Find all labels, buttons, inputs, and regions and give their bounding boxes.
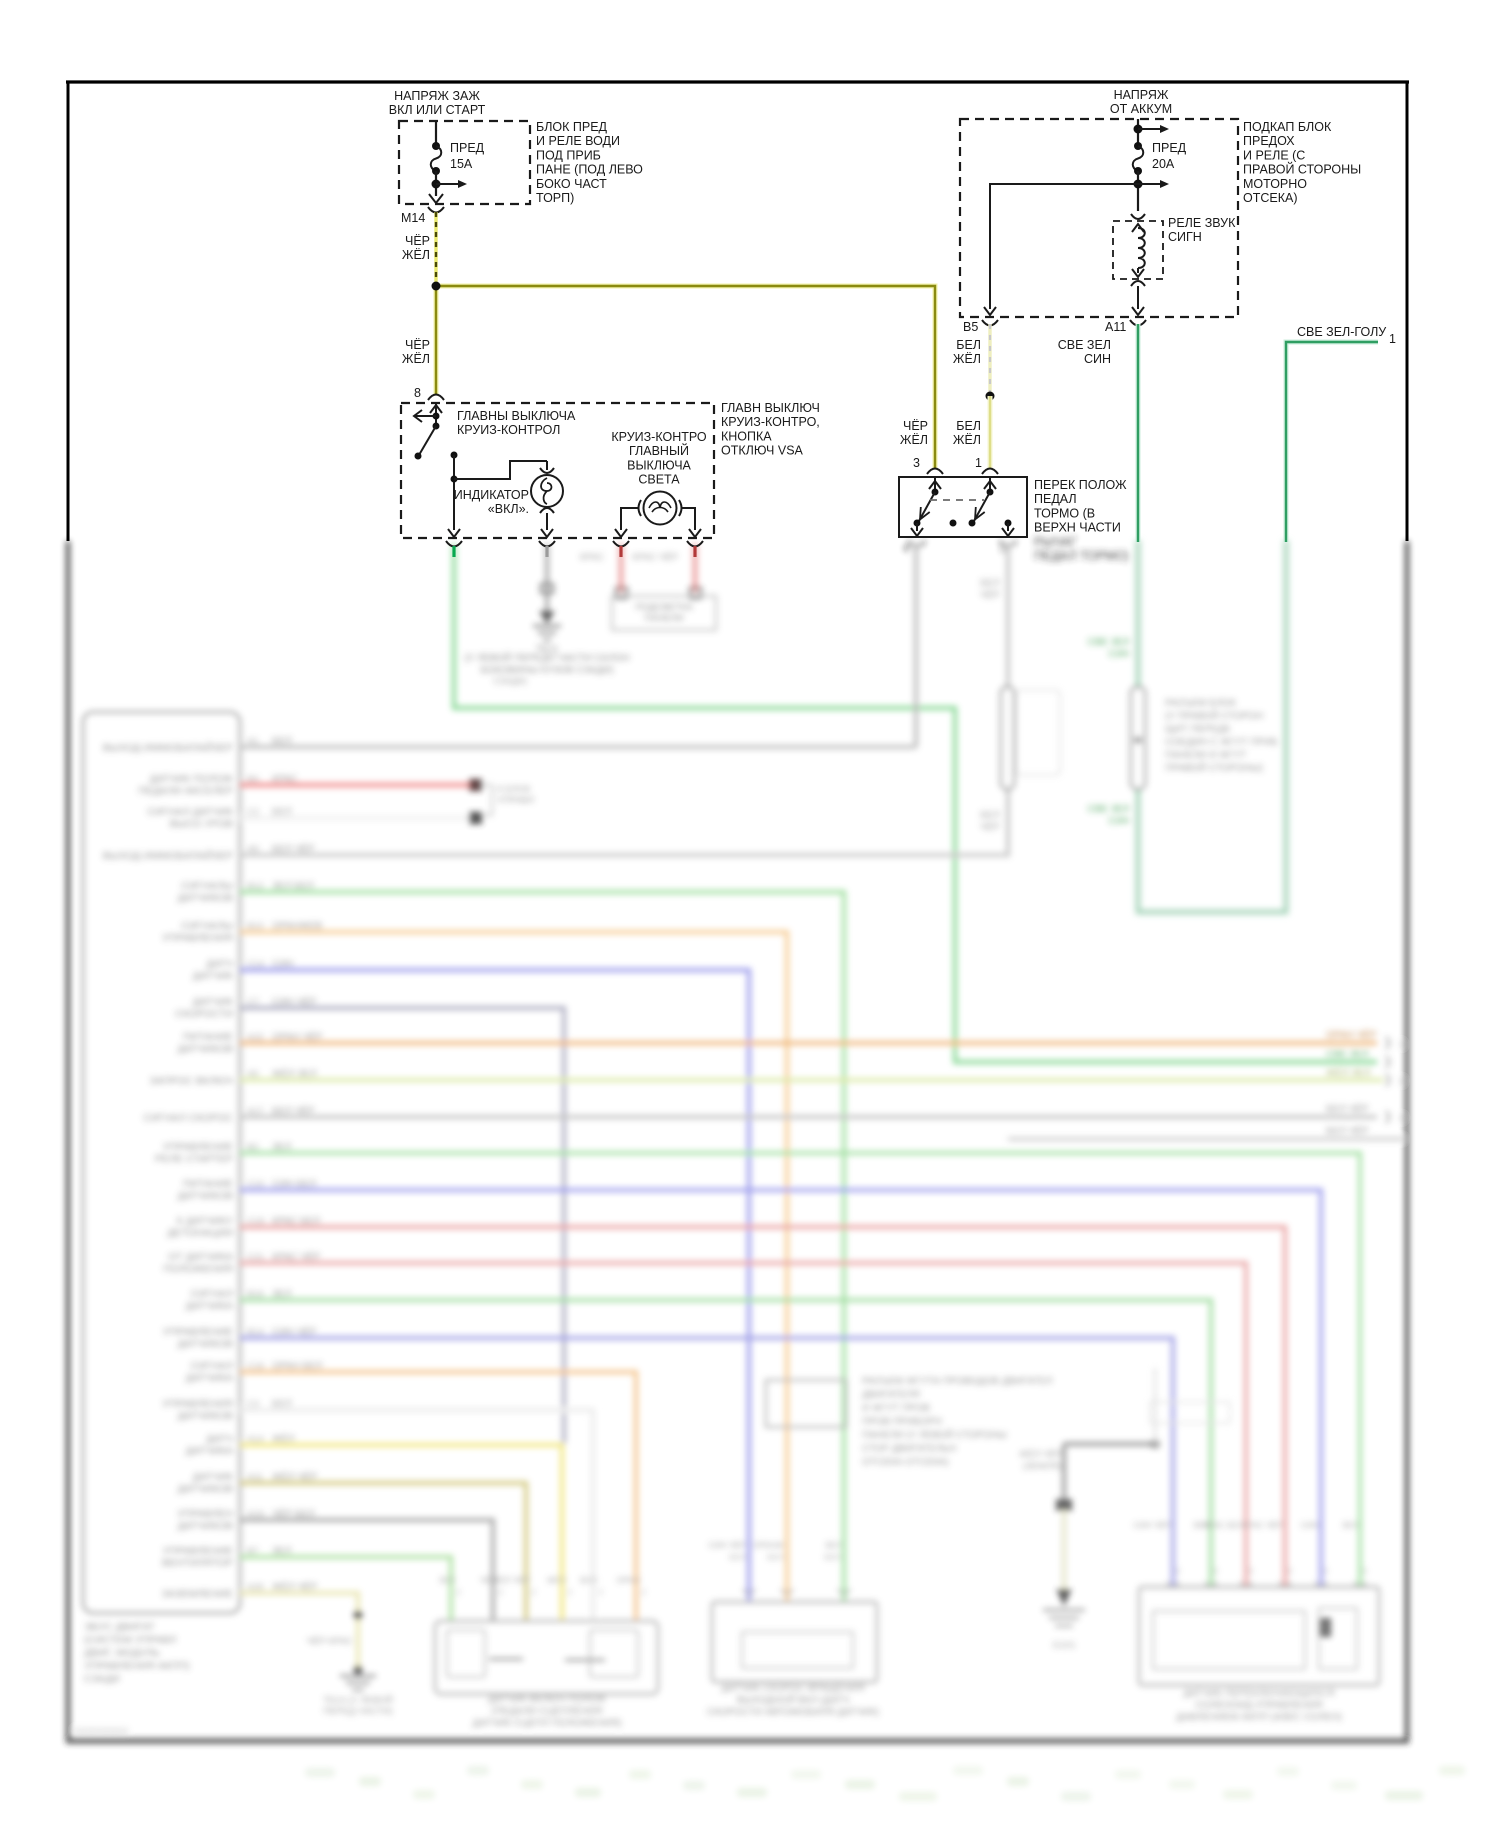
svg-text:НАПРЯЖ: НАПРЯЖ [1114,88,1169,102]
svg-text:2: 2 [1399,1076,1404,1086]
svg-text:ВЫКЛЮЧА: ВЫКЛЮЧА [627,458,691,472]
svg-text:КРАС БЕЛ: КРАС БЕЛ [1203,1520,1244,1530]
svg-text:ДАТЧИК: ДАТЧИК [193,996,234,1008]
svg-text:ДАТЧИКА: ДАТЧИКА [186,1300,233,1312]
svg-text:ЧЁР: ЧЁР [405,338,430,352]
svg-text:ДВИГ, МОДУЛЬ: ДВИГ, МОДУЛЬ [84,1647,160,1659]
svg-text:ДАТЧИКОВ: ДАТЧИКОВ [178,1410,233,1422]
svg-text:УПРАВЛЕНИЯ АКПП): УПРАВЛЕНИЯ АКПП) [84,1660,190,1672]
svg-text:2: 2 [567,1587,572,1597]
svg-text:ПОДСВЕТКА: ПОДСВЕТКА [635,602,693,613]
svg-text:3: 3 [1399,1113,1404,1123]
svg-text:ЧЁР: ЧЁР [405,234,430,248]
svg-text:СЗАДИ: СЗАДИ [84,1673,120,1685]
svg-text:ДАТЧИКОВ: ДАТЧИКОВ [178,1483,233,1495]
svg-text:ВЫХОД ИММОБИЛАЙЗЕР: ВЫХОД ИММОБИЛАЙЗЕР [103,741,233,754]
svg-text:2: 2 [598,1587,603,1597]
svg-text:СИГНАЛ: СИГНАЛ [190,1360,233,1372]
svg-text:3: 3 [1248,1566,1253,1576]
svg-text:УПРАВЛЕН: УПРАВЛЕН [177,1508,233,1520]
svg-text:ПОЛОЖЕНИЯ: ПОЛОЖЕНИЯ [163,1263,233,1275]
svg-text:СВЕ ЗЕЛ-ГОЛУ: СВЕ ЗЕЛ-ГОЛУ [1297,325,1386,339]
svg-text:ОТСЕКА ОТСЕКА): ОТСЕКА ОТСЕКА) [862,1457,949,1468]
svg-text:ЗАЗЕМЛЕНИЕ: ЗАЗЕМЛЕНИЕ [162,1588,233,1600]
svg-text:СВЕ ЗЕЛ: СВЕ ЗЕЛ [1326,1049,1369,1060]
svg-text:КРУИЗ-КОНТРОЛ: КРУИЗ-КОНТРОЛ [457,423,560,437]
svg-text:БЕЛ: БЕЛ [956,419,981,433]
svg-text:КРУИЗ-КОНТРО: КРУИЗ-КОНТРО [611,430,707,444]
svg-text:КРАС ЧЁР: КРАС ЧЁР [632,552,678,563]
svg-text:БЕЛ: БЕЛ [767,1552,784,1562]
svg-text:СИГНАЛ СКОРОС: СИГНАЛ СКОРОС [143,1112,233,1124]
svg-text:БЕЛ: БЕЛ [980,810,1000,821]
svg-text:ПРОВ ПРИБОРН: ПРОВ ПРИБОРН [862,1417,942,1428]
svg-text:РЕЛЕ ЗВУК: РЕЛЕ ЗВУК [1168,216,1236,230]
svg-text:ЧЁР: ЧЁР [903,419,928,433]
svg-text:2: 2 [531,1587,536,1597]
svg-text:ДАТЧИК ПЕРЕКЛЮЧАЮЩИХСЯ: ДАТЧИК ПЕРЕКЛЮЧАЮЩИХСЯ [1183,1688,1334,1699]
svg-text:ДАТЧИКОВ: ДАТЧИКОВ [178,1338,233,1350]
svg-text:15А: 15А [450,157,473,171]
svg-text:M14: M14 [401,211,425,225]
svg-text:ДАТЧИКОВ: ДАТЧИКОВ [178,1520,233,1532]
svg-text:ВЫХОДНОЙ ВАЛ (ДАТЧ: ВЫХОДНОЙ ВАЛ (ДАТЧ [737,1693,850,1706]
svg-text:СИН: СИН [1301,1520,1319,1530]
svg-text:КРУИЗ-КОНТРО,: КРУИЗ-КОНТРО, [721,415,820,429]
svg-text:ДАТЧИК: ДАТЧИК [193,1471,234,1483]
svg-text:СЗАДИ): СЗАДИ) [493,676,527,686]
svg-text:КНОПКА: КНОПКА [721,429,772,443]
svg-text:ДАТЧИК СКОРОС ВРАЩЕНИЯ: ДАТЧИК СКОРОС ВРАЩЕНИЯ [721,1683,864,1694]
svg-text:ОРАН ЧЁР: ОРАН ЧЁР [1326,1029,1377,1041]
svg-text:3: 3 [1175,1566,1180,1576]
svg-text:КРАС ЧЁР: КРАС ЧЁР [1242,1520,1283,1530]
svg-text:ЖЁЛ ЧЁР: ЖЁЛ ЧЁР [1019,1449,1062,1460]
svg-text:3: 3 [913,456,920,470]
svg-text:СИН: СИН [1108,649,1130,660]
svg-text:И РЕЛЕ ВОДИ: И РЕЛЕ ВОДИ [536,134,620,148]
svg-text:УПРАВЛ: УПРАВЛ [497,795,534,806]
svg-text:1: 1 [1389,332,1396,346]
svg-text:ЭБУС ДВИГАТ: ЭБУС ДВИГАТ [84,1621,155,1633]
svg-text:ВЕНТИЛЯТОР: ВЕНТИЛЯТОР [162,1557,233,1569]
svg-text:ВЫСО УРОВ: ВЫСО УРОВ [170,818,233,830]
svg-text:К ДАТЧИКУ: К ДАТЧИКУ [177,1215,234,1227]
svg-text:БОКОВИНЫ КУЗОВ СЗАДИ): БОКОВИНЫ КУЗОВ СЗАДИ) [480,665,613,676]
svg-text:(ПЕДАЛИ СЦЕПЛЕНИЯ: (ПЕДАЛИ СЦЕПЛЕНИЯ [492,1706,603,1717]
svg-text:СВЕТА: СВЕТА [638,473,680,487]
svg-text:ПИТАНИЕ: ПИТАНИЕ [183,1031,233,1043]
svg-text:ЗЕЛ: ЗЕЛ [825,1540,841,1550]
svg-text:ЖЁЛ: ЖЁЛ [402,352,430,366]
svg-text:ИНДИКАТОР: ИНДИКАТОР [454,488,529,502]
svg-text:БЕЛ: БЕЛ [980,578,1000,589]
svg-text:БЕЛ: БЕЛ [729,1552,746,1562]
svg-text:И РЕЛЕ (С: И РЕЛЕ (С [1243,148,1305,162]
svg-text:ОРАНЖ: ОРАНЖ [753,1540,785,1550]
svg-text:СИГН: СИГН [1168,230,1202,244]
svg-text:ДАТЧИКА: ДАТЧИКА [186,1372,233,1384]
svg-text:ДАТЧИКОВ: ДАТЧИКОВ [178,1190,233,1202]
svg-text:ЖЁЛ: ЖЁЛ [953,433,981,447]
svg-text:ДАТЧИКОВ: ДАТЧИКОВ [178,892,233,904]
svg-text:(У ЛЕВОЙ ПЕРЕДН ЧАСТИ САЛОН: (У ЛЕВОЙ ПЕРЕДН ЧАСТИ САЛОН [464,651,629,664]
svg-text:УПРАВЛЕНИЕ: УПРАВЛЕНИЕ [163,1141,233,1153]
svg-text:ЧЁР: ЧЁР [980,589,1000,601]
svg-text:(ЗЕМЛЯ): (ЗЕМЛЯ) [1023,1461,1062,1472]
svg-text:(У ПРАВОЙ СТОРОН: (У ПРАВОЙ СТОРОН [1165,709,1263,722]
svg-text:СИГНАЛЫ: СИГНАЛЫ [181,880,233,892]
svg-text:3: 3 [1213,1566,1218,1576]
svg-text:ПЕРЕК ПОЛОЖ: ПЕРЕК ПОЛОЖ [1034,478,1127,492]
svg-text:ОТ ДАТЧИКА: ОТ ДАТЧИКА [168,1251,233,1263]
svg-text:ПОД ПРИБ: ПОД ПРИБ [536,148,601,162]
svg-text:СИН: СИН [1084,352,1111,366]
svg-text:БЛОК ПРЕД: БЛОК ПРЕД [536,120,608,134]
svg-text:2: 2 [456,1587,461,1597]
svg-text:ПОДКАП БЛОК: ПОДКАП БЛОК [1243,120,1332,134]
svg-text:20А: 20А [1152,157,1175,171]
svg-text:ЗЕЛ: ЗЕЛ [1342,1520,1358,1530]
svg-text:4: 4 [903,541,910,555]
svg-text:ТОРМО (В: ТОРМО (В [1034,506,1095,520]
svg-text:ПРЕДОХ: ПРЕДОХ [1243,134,1295,148]
svg-text:МОТОРНО: МОТОРНО [1243,177,1307,191]
svg-text:3: 3 [1323,1566,1328,1576]
svg-text:УПРАВЛЕНИЯ: УПРАВЛЕНИЯ [162,932,233,944]
svg-text:ТБ14 (У ЛЕВОЙ: ТБ14 (У ЛЕВОЙ [323,1694,393,1706]
svg-text:3: 3 [1362,1566,1367,1576]
svg-text:ДАВЛЕНИЕМ АКПП (А/В/С СОЛЕН): ДАВЛЕНИЕМ АКПП (А/В/С СОЛЕН) [1176,1712,1342,1723]
svg-text:ПЕДАЛ ТОРМО): ПЕДАЛ ТОРМО) [1034,549,1129,563]
svg-text:«ВКЛ».: «ВКЛ». [488,502,529,516]
svg-text:ПРЕД: ПРЕД [1152,141,1187,155]
svg-text:СОЛЕНОИД УПРАВЛЕНИЯ: СОЛЕНОИД УПРАВЛЕНИЯ [1195,1700,1322,1711]
svg-text:РЫЧАГ: РЫЧАГ [1034,535,1077,549]
svg-text:ДАТЧИК ВКЛЮЧ ПОЛОЖ: ДАТЧИК ВКЛЮЧ ПОЛОЖ [488,1694,606,1705]
svg-text:БЕЛ ЧЁР: БЕЛ ЧЁР [1326,1125,1369,1137]
svg-text:ЖЁЛ: ЖЁЛ [900,433,928,447]
svg-text:РЕЛЕ СТАРТЕР: РЕЛЕ СТАРТЕР [155,1153,233,1165]
svg-text:СКОРОСТИ: СКОРОСТИ [175,1008,233,1020]
svg-text:3: 3 [1287,1566,1292,1576]
svg-text:БЕЛ: БЕЛ [824,1552,841,1562]
svg-text:СИГНАЛ: СИГНАЛ [190,1288,233,1300]
svg-text:G101: G101 [1052,1640,1075,1651]
svg-text:БОКО ЧАСТ: БОКО ЧАСТ [536,177,607,191]
svg-text:СТОР ДВИГАТЕЛЬН: СТОР ДВИГАТЕЛЬН [862,1444,956,1455]
svg-text:УПРАВЛЕНИЯ: УПРАВЛЕНИЯ [162,1398,233,1410]
svg-text:СИН: СИН [1108,816,1130,827]
svg-text:СИГНАЛ ДАТЧИК: СИГНАЛ ДАТЧИК [147,806,234,818]
svg-text:ВЕРХН ЧАСТИ: ВЕРХН ЧАСТИ [1034,521,1121,535]
svg-text:ОТКЛЮЧ VSA: ОТКЛЮЧ VSA [721,444,804,458]
svg-text:ДАТЧИКОВ: ДАТЧИКОВ [178,1043,233,1055]
svg-text:СВЕ ЗЕЛ: СВЕ ЗЕЛ [1087,637,1130,648]
svg-text:ГЛАВНЫ ВЫКЛЮЧА: ГЛАВНЫ ВЫКЛЮЧА [457,409,576,423]
svg-text:ЖЁЛ ЧЁР: ЖЁЛ ЧЁР [492,1575,531,1585]
svg-text:ЩИТ ПЕРЕДК: ЩИТ ПЕРЕДК [1165,724,1230,735]
svg-text:ОТ АККУМ: ОТ АККУМ [1110,102,1172,116]
svg-text:ЗЕЛ: ЗЕЛ [439,1575,455,1585]
svg-text:8: 8 [414,386,421,400]
svg-text:ЗАПРОС ВКЛЮЧ: ЗАПРОС ВКЛЮЧ [150,1075,233,1087]
svg-text:2: 2 [641,1587,646,1597]
svg-text:ПЕДАЛ: ПЕДАЛ [1034,492,1077,506]
svg-text:ДЕТОНАЦИИ: ДЕТОНАЦИИ [167,1227,233,1239]
svg-text:1: 1 [1399,1039,1404,1049]
svg-text:ПРАВОЙ СТОРОНЫ): ПРАВОЙ СТОРОНЫ) [1165,761,1263,774]
svg-text:РАЗЪЕМ ЖГУТА ПРОВОДОВ ДВИГАТЕЛ: РАЗЪЕМ ЖГУТА ПРОВОДОВ ДВИГАТЕЛ [862,1376,1052,1387]
svg-text:ДАТЧИКА: ДАТЧИКА [186,1445,233,1457]
svg-text:ЧЁР-КРАС: ЧЁР-КРАС [307,1636,354,1647]
svg-text:ДАТЧИК ПОЛОЖ: ДАТЧИК ПОЛОЖ [150,773,234,785]
svg-text:УПРАВЛЕНИЕ: УПРАВЛЕНИЕ [163,1326,233,1338]
svg-text:НАПРЯЖ ЗАЖ: НАПРЯЖ ЗАЖ [394,89,480,103]
svg-text:ДАТЧИК СЦЕПЛ ПОЛОЖЕНИЯ): ДАТЧИК СЦЕПЛ ПОЛОЖЕНИЯ) [473,1718,622,1729]
svg-text:ЖЁЛ: ЖЁЛ [402,248,430,262]
svg-text:ПАНЕЛИ: ПАНЕЛИ [644,613,684,624]
svg-text:ПАНЕ (ПОД ЛЕВО: ПАНЕ (ПОД ЛЕВО [536,163,643,177]
svg-text:БЕЛ ЧЁР: БЕЛ ЧЁР [1326,1103,1369,1115]
svg-text:БЕЛ: БЕЛ [580,1575,597,1585]
svg-text:УПРАВЛЕНИЕ: УПРАВЛЕНИЕ [163,1545,233,1557]
svg-text:(СИСТЕМ УПРАВЛ: (СИСТЕМ УПРАВЛ [84,1634,176,1646]
svg-text:ОТСЕКА): ОТСЕКА) [1243,191,1298,205]
svg-text:S00000000000: S00000000000 [74,1727,129,1736]
svg-text:ЖЁЛ: ЖЁЛ [547,1575,566,1585]
svg-text:ДАТЧ: ДАТЧ [206,1433,233,1445]
svg-text:ЖЁЛ ЗЕЛ: ЖЁЛ ЗЕЛ [1326,1067,1371,1079]
svg-text:СИН ЧЁР: СИН ЧЁР [1133,1520,1171,1530]
svg-text:СИГНАЛЫ: СИГНАЛЫ [181,920,233,932]
svg-text:РАЗЪЕМ БЛОК: РАЗЪЕМ БЛОК [1165,698,1236,709]
svg-text:СВЕ ЗЕЛ: СВЕ ЗЕЛ [1058,338,1111,352]
svg-text:КРАС: КРАС [580,552,604,563]
svg-text:A11: A11 [1105,320,1126,334]
svg-text:ДВИГАТЕЛЯ: ДВИГАТЕЛЯ [862,1390,920,1401]
svg-text:ВКЛ ИЛИ СТАРТ: ВКЛ ИЛИ СТАРТ [389,103,486,117]
svg-text:ПРЕД: ПРЕД [450,141,485,155]
svg-text:СВЕ ЗЕЛ: СВЕ ЗЕЛ [1087,804,1130,815]
svg-text:2: 2 [498,1587,503,1597]
svg-text:ПЕДАЛИ АКСЕЛЕР: ПЕДАЛИ АКСЕЛЕР [138,785,233,797]
svg-text:СИН ЧЁР: СИН ЧЁР [708,1540,746,1550]
svg-text:ЧЁР: ЧЁР [980,821,1000,833]
svg-text:ТОРП): ТОРП) [536,191,574,205]
svg-text:1: 1 [975,456,982,470]
svg-text:ЖЁЛ: ЖЁЛ [953,352,981,366]
svg-text:К БЛОК: К БЛОК [497,784,531,795]
svg-text:ОРАН: ОРАН [616,1575,640,1585]
svg-text:ПИТАНИЕ: ПИТАНИЕ [183,1178,233,1190]
svg-text:ВЫХОД ИММОБИЛАЙЗЕР: ВЫХОД ИММОБИЛАЙЗЕР [103,849,233,862]
svg-text:ПАНЕЛИ (У ЛЕВОЙ СТОРОНЫ: ПАНЕЛИ (У ЛЕВОЙ СТОРОНЫ [862,1428,1007,1441]
svg-text:СКОРОСТИ АВТОМОБИЛЯ ДАТЧИК): СКОРОСТИ АВТОМОБИЛЯ ДАТЧИК) [707,1707,879,1718]
svg-text:ДАТЧ: ДАТЧ [206,958,233,970]
svg-text:ГЛАВНЫЙ: ГЛАВНЫЙ [629,443,689,458]
svg-text:И ЖГУТ ПРОВ: И ЖГУТ ПРОВ [862,1403,930,1414]
svg-text:ДАТЧИК: ДАТЧИК [193,970,234,982]
svg-text:ПРАВОЙ СТОРОНЫ: ПРАВОЙ СТОРОНЫ [1243,162,1361,177]
svg-text:B5: B5 [963,320,978,334]
svg-text:ПЕРЕД ЧАСТИ): ПЕРЕД ЧАСТИ) [323,1706,393,1717]
svg-text:ПАНЕЛИ И ЖГУТ: ПАНЕЛИ И ЖГУТ [1165,750,1246,761]
svg-text:БЕЛ: БЕЛ [956,338,981,352]
svg-text:СОЕДИН С ЖГУТ ПРИБ: СОЕДИН С ЖГУТ ПРИБ [1165,737,1278,748]
svg-text:ГЛАВН ВЫКЛЮЧ: ГЛАВН ВЫКЛЮЧ [721,401,820,415]
